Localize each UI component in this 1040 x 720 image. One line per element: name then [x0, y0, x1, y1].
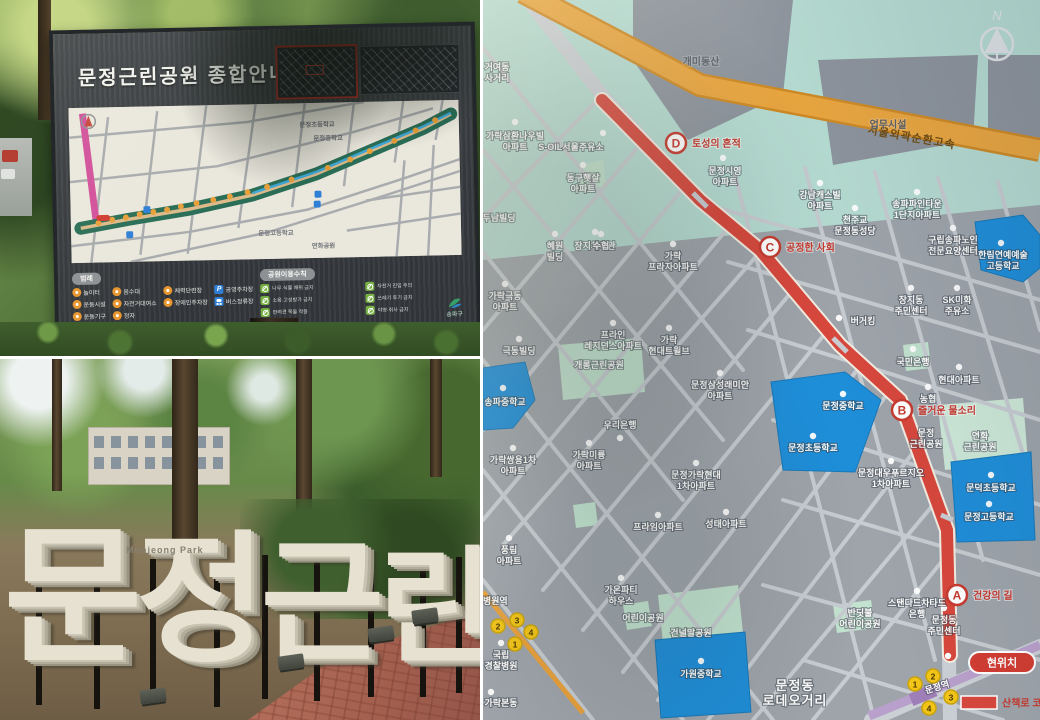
svg-text:현위치: 현위치 [987, 656, 1017, 670]
map-label-gawon-middle: 가원중학교 [680, 668, 721, 679]
svg-text:4: 4 [927, 704, 932, 714]
white-van [1, 169, 15, 179]
floodlight [139, 687, 167, 704]
map-label-mj-high: 문정고등학교 [964, 511, 1014, 522]
no-sign-icon [365, 282, 374, 291]
legend-item: 운동기구 [73, 311, 106, 321]
map-label-seongtae: 성태아파트 [705, 518, 747, 529]
map-label-office: 업무시설 [870, 118, 907, 131]
inset-map-focus-box [306, 65, 324, 75]
map-label-gaerong-park: 개롱근린공원 [574, 359, 624, 370]
facility-icon [113, 311, 122, 320]
svg-text:1: 1 [513, 640, 518, 650]
foreground-bushes [0, 322, 480, 356]
svg-text:2: 2 [496, 622, 501, 632]
map-label-geonneolmal: 건널말공원 [670, 627, 711, 638]
facility-icon [72, 300, 81, 309]
legend-item: 자전거대여소 [113, 298, 157, 308]
map-label-songpa-middle: 송파중학교 [484, 396, 525, 407]
sign-map-here-marker [96, 215, 110, 221]
map-label-garak-bondong: 가락본동 [484, 697, 517, 708]
map-label-dunam: 두남빌딩 [483, 212, 516, 223]
svg-text:3: 3 [515, 616, 520, 626]
park-name-3d-letters: 문 정 근 린 공 원 [4, 421, 478, 659]
facility-icon [164, 298, 173, 307]
no-sign-icon [260, 296, 269, 305]
park-entrance-sign-photo: 문 정 근 린 공 원 Munjeong Park [0, 359, 480, 720]
course-badge-A-label: 건강의 길 [973, 589, 1013, 602]
legend-item: 운동시설 [72, 299, 105, 309]
course-legend-label: 산책로 코스 [1002, 697, 1040, 710]
area-map: 서울외곽순환고속 경찰병원역 [483, 0, 1040, 720]
facility-icon [113, 299, 122, 308]
course-badge-C-label: 공정한 사회 [786, 241, 835, 254]
facility-icon [73, 312, 82, 321]
map-label-kb-bank: 국민은행 [896, 356, 929, 367]
svg-text:2: 2 [931, 672, 936, 682]
red-truck [2, 150, 18, 162]
svg-text:A: A [953, 589, 962, 603]
course-badge-D-label: 토성의 흔적 [692, 137, 741, 150]
course-legend-swatch [961, 696, 997, 709]
rules-title: 공원이용수칙 [260, 268, 315, 281]
facility-icon [72, 288, 81, 297]
map-label-children-park: 어린이공원 [622, 612, 663, 623]
legend-title: 범례 [72, 272, 101, 285]
legend-item-parking: P공영주차장 [215, 284, 254, 294]
map-label-mundeok-elem: 문덕초등학교 [966, 482, 1016, 493]
sign-letter: 문 [4, 536, 136, 659]
map-label-prime: 프라임아파트 [633, 521, 683, 532]
map-label-suhyup: 수협 [593, 240, 610, 251]
legend-item: 음수대 [112, 286, 156, 296]
rule-item: 자전거 진입 주의 [365, 280, 464, 291]
map-label-gaemi-hill: 개미동산 [683, 55, 721, 68]
park-name-english: Munjeong Park [126, 545, 204, 555]
map-label-mj-elem: 문정초등학교 [788, 442, 838, 453]
no-sign-icon [261, 308, 270, 317]
sign-letter: 근 [261, 549, 378, 659]
svg-text:3: 3 [949, 693, 954, 703]
parking-icon: P [215, 285, 224, 294]
signboard-park-map: 문정초등학교 문정중학교 문정고등학교 연화공원 [68, 100, 461, 263]
legend-item: 장애인주차장 [164, 297, 208, 307]
facility-icon [112, 287, 121, 296]
legend-item: 정자 [113, 310, 157, 320]
inset-map-wide [359, 44, 460, 95]
legend-facilities: 범례 놀이터 운동시설 운동기구 음수대 자전거대여소 정자 [72, 264, 253, 328]
map-label-s-oil: S-OIL서울주유소 [538, 141, 604, 152]
inset-map-highlighted [275, 44, 358, 100]
inset-map-streets [362, 47, 457, 92]
legend-park-rules: 공원이용수칙 나무·식물 채취 금지 자전거 진입 주의 소음·고성방가 금지 … [260, 260, 465, 324]
course-badge-B-label: 즐거운 물소리 [918, 404, 976, 417]
svg-text:N: N [992, 8, 1002, 23]
songpa-gu-logo: 송파구 [446, 297, 463, 318]
map-label-geukdong-bldg: 극동빌딩 [502, 345, 535, 356]
map-label-hyundai-apt: 현대아파트 [938, 374, 980, 385]
no-sign-icon [260, 284, 269, 293]
svg-text:1: 1 [913, 680, 918, 690]
station-line3-label: 경찰병원역 [483, 595, 508, 606]
sign-letter: 정 [136, 543, 261, 659]
facility-icon [163, 286, 172, 295]
no-sign-icon [366, 306, 375, 315]
svg-text:C: C [766, 241, 775, 255]
legend-item-bus: 버스정류장 [215, 296, 254, 306]
area-map-photo: 서울외곽순환고속 경찰병원역 [483, 0, 1040, 720]
map-label-mj-middle: 문정중학교 [822, 400, 863, 411]
svg-text:4: 4 [529, 628, 534, 638]
park-guide-collage: 문정근린공원 종합안내도 [0, 0, 1040, 720]
signboard: 문정근린공원 종합안내도 [49, 22, 480, 339]
rule-item: 반려견 목줄 착용 [261, 306, 360, 317]
legend-item: 놀이터 [72, 287, 105, 297]
map-label-nonghyup: 농협 [920, 393, 937, 404]
bus-stop-icon [215, 297, 224, 306]
svg-text:B: B [898, 404, 907, 418]
info-signboard-photo: 문정근린공원 종합안내도 [0, 0, 480, 356]
songpa-leaf-icon [446, 297, 462, 309]
map-label-burger-king: 버거킹 [851, 315, 876, 326]
legend-item: 체력단련장 [163, 285, 207, 295]
no-sign-icon [365, 294, 374, 303]
current-location-badge: 현위치 [969, 652, 1035, 673]
rule-item: 나무·식물 채취 금지 [260, 282, 359, 293]
rule-item: 소음·고성방가 금지 [260, 294, 359, 305]
map-label-woori-bank: 우리은행 [603, 419, 636, 430]
svg-text:D: D [672, 137, 681, 151]
